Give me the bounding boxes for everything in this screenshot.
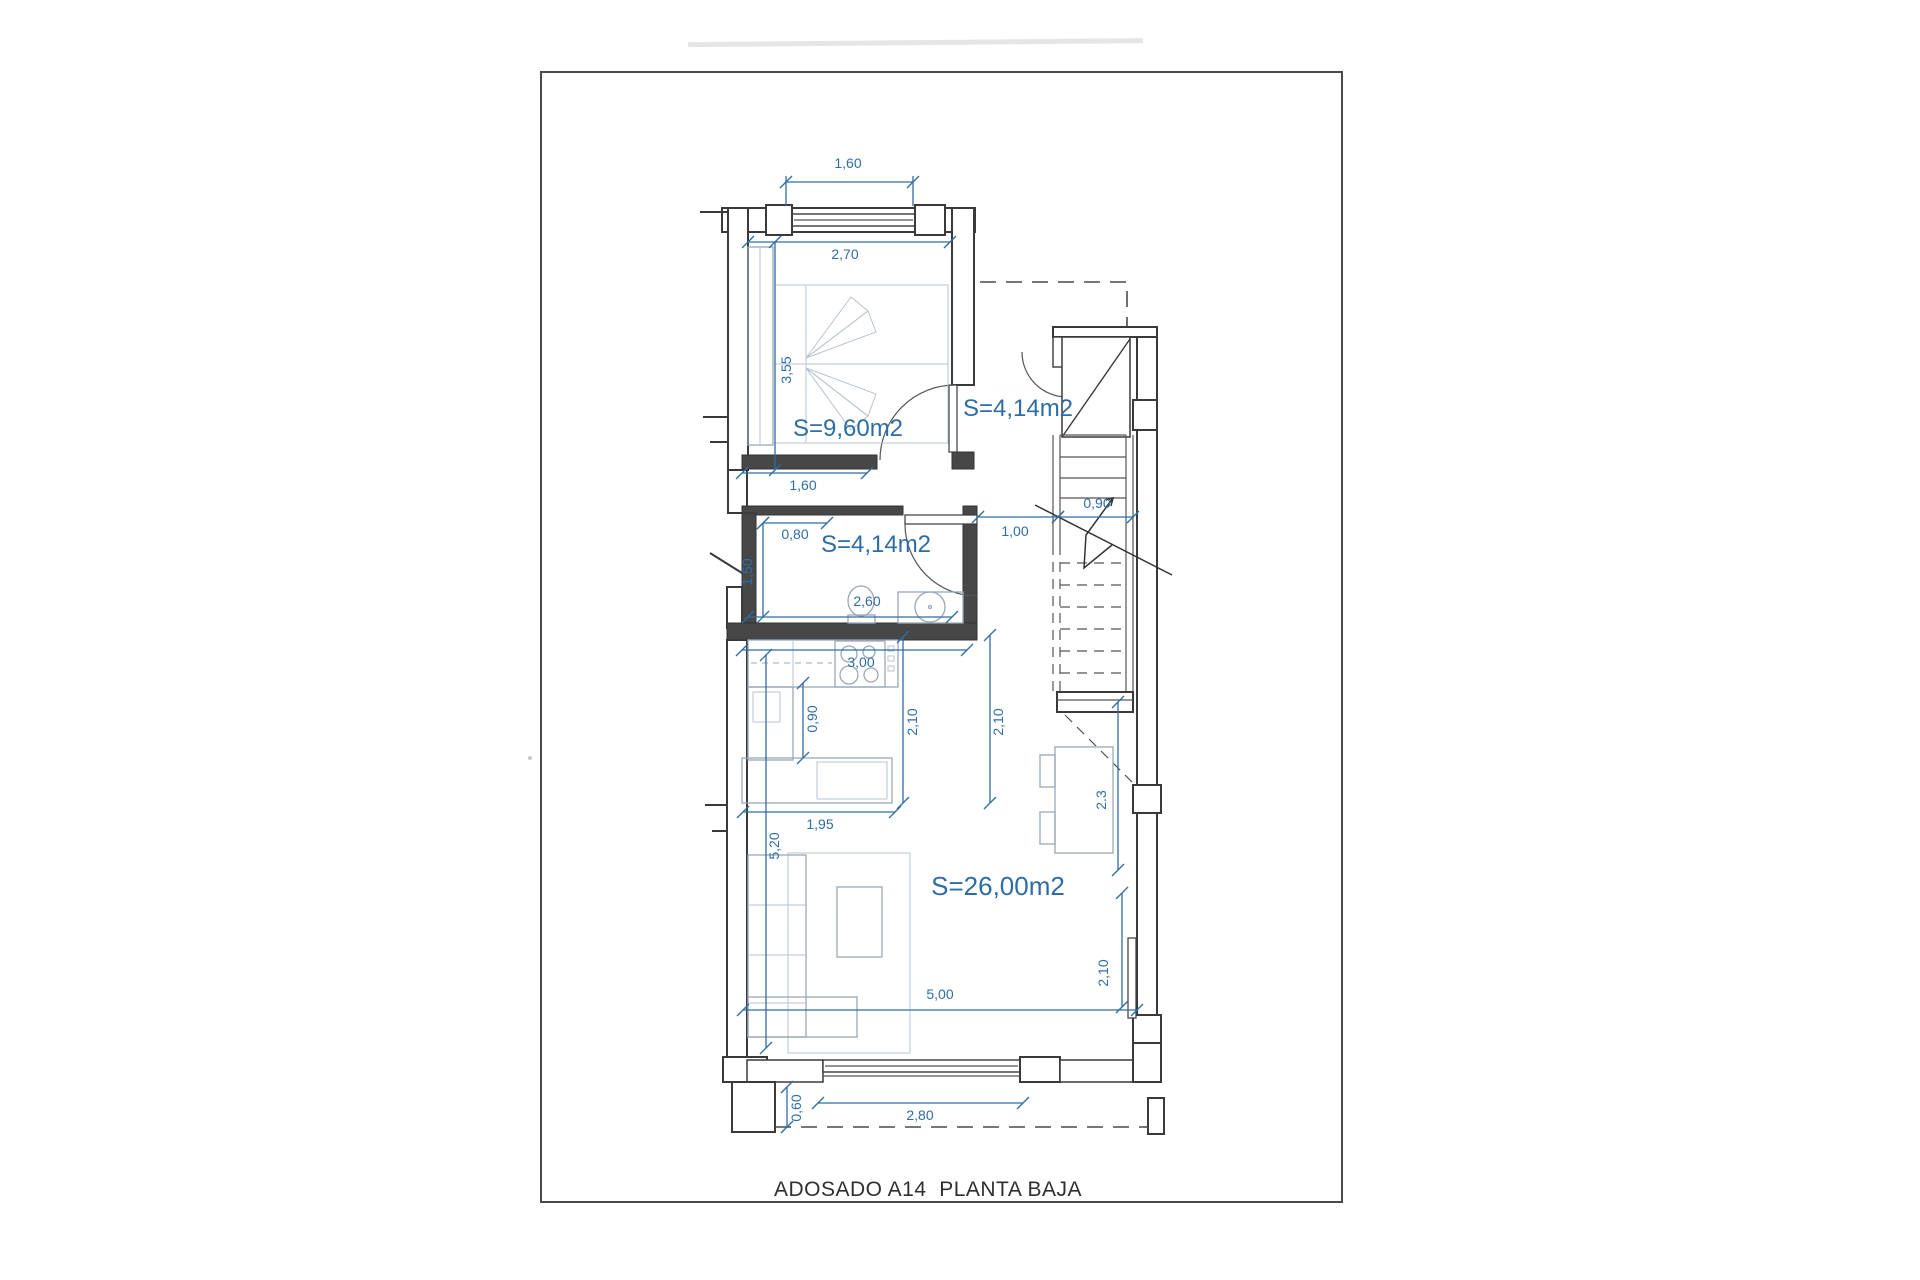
room-label-hall: S=4,14m2 xyxy=(963,395,1073,422)
wall-pier xyxy=(1133,1015,1161,1043)
dim-bedroom-width: 2,70 xyxy=(831,246,858,262)
dim-bedroom-window-width: 1,60 xyxy=(834,155,861,171)
floor-plan-drawing: 1,60 2,70 3,55 1,60 0,80 1,50 2,60 1,00 … xyxy=(0,0,1920,1280)
bedroom-window xyxy=(792,214,915,226)
scan-smudge xyxy=(688,38,1143,47)
dim-kitchen-run: 1,95 xyxy=(806,816,833,832)
dim-living-depth: 5,20 xyxy=(766,832,782,859)
plan-title: ADOSADO A14 PLANTA BAJA xyxy=(774,1178,1082,1201)
dim-kitchen-aisle: 0,90 xyxy=(804,705,820,732)
room-label-bedroom: S=9,60m2 xyxy=(793,415,903,442)
dim-kitchen-depth-right: 2,10 xyxy=(990,708,1006,735)
dim-living-width: 5,00 xyxy=(926,986,953,1002)
dim-bath-depth: 1,50 xyxy=(739,558,755,585)
dim-bedroom-lower-wall: 1,60 xyxy=(789,477,816,493)
scan-speck xyxy=(528,756,532,760)
dim-stair-width: 0,90 xyxy=(1083,495,1110,511)
dim-bedroom-depth: 3,55 xyxy=(778,356,794,383)
dim-terrace-window-width: 2,80 xyxy=(906,1107,933,1123)
room-label-living-kitchen: S=26,00m2 xyxy=(931,871,1065,901)
wall-pier xyxy=(766,205,792,235)
dim-kitchen-width: 3,00 xyxy=(847,654,874,670)
wall-pier xyxy=(1133,785,1161,813)
dim-bath-width: 2,60 xyxy=(853,593,880,609)
wall-pier xyxy=(915,205,945,235)
dim-hall-passage: 1,00 xyxy=(1001,523,1028,539)
side-window-strip xyxy=(1128,938,1136,1018)
terrace-step xyxy=(732,1082,775,1132)
room-label-bathroom: S=4,14m2 xyxy=(821,531,931,558)
dim-kitchen-depth-left: 2,10 xyxy=(904,708,920,735)
dim-rear-window-height: 2,10 xyxy=(1095,959,1111,986)
terrace-post xyxy=(1148,1098,1164,1134)
dim-terrace-step: 0,60 xyxy=(788,1094,804,1121)
dim-bath-entry-offset: 0,80 xyxy=(781,526,808,542)
dim-dining-depth: 2.3 xyxy=(1093,790,1109,810)
